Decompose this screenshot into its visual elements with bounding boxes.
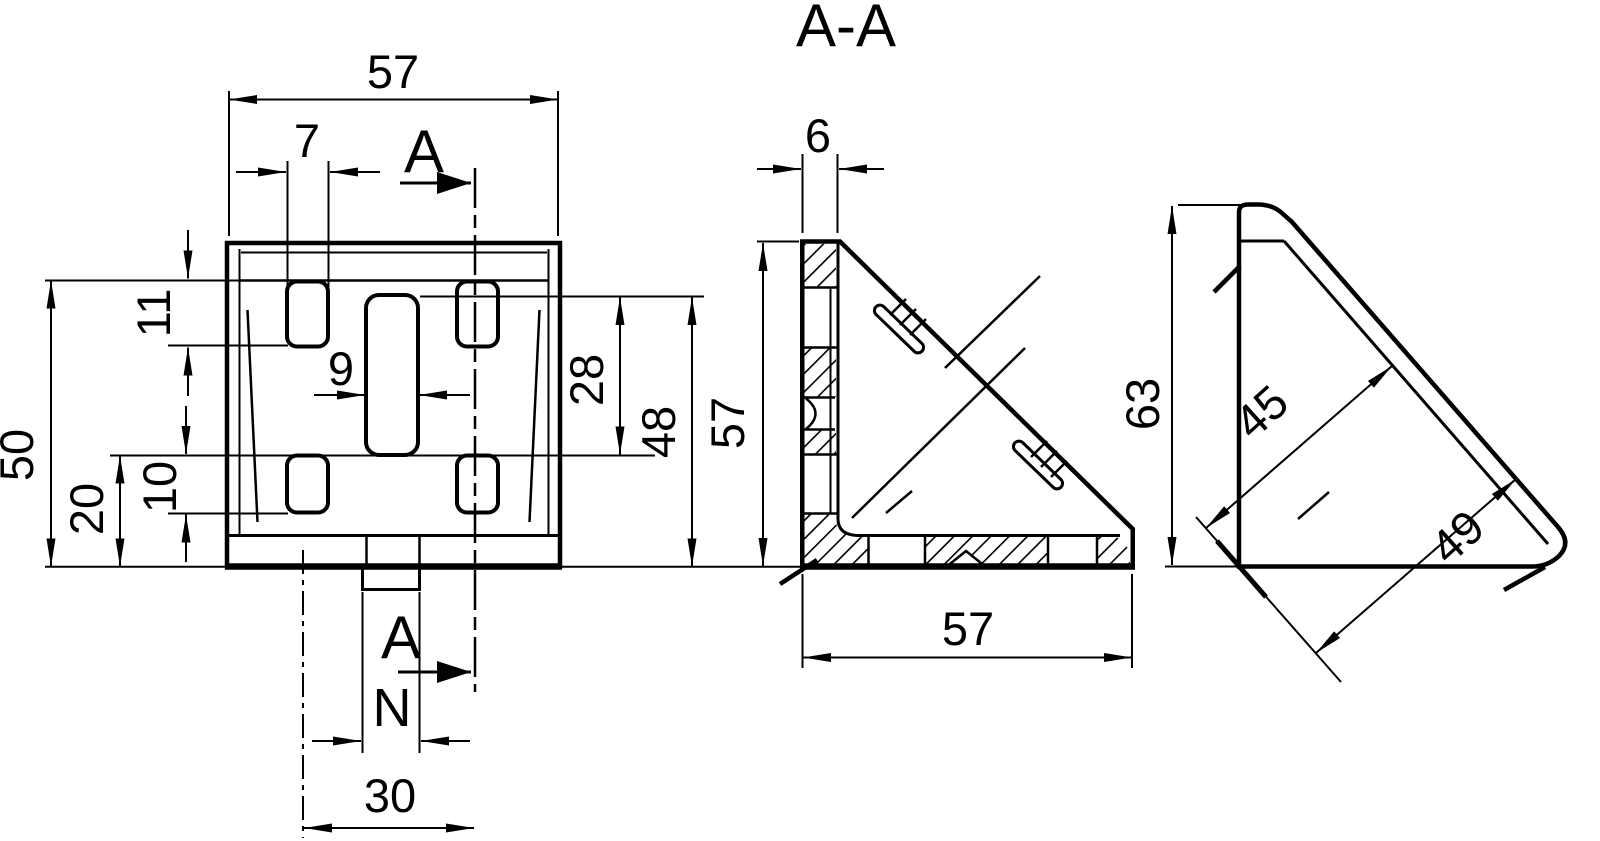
engineering-drawing: A-A A A 57	[0, 0, 1600, 841]
dim-label-20: 20	[60, 483, 113, 535]
side-tick-right	[1504, 567, 1545, 590]
dim-wall-thickness: 6	[757, 109, 884, 233]
drawing-page: A-A A A 57	[0, 0, 1600, 841]
corner-tick	[780, 560, 817, 584]
dim-section-height: 57	[701, 242, 799, 567]
section-letter-top: A	[404, 118, 444, 185]
dim-label-11: 11	[127, 289, 180, 338]
side-outline	[1239, 205, 1565, 567]
slot-top-left	[287, 282, 328, 347]
hatch-wall-top	[804, 244, 836, 287]
dim-center-slot-height: 28	[560, 297, 620, 455]
dim-section-width: 57	[803, 574, 1133, 668]
slot-bottom-right	[457, 456, 498, 513]
front-view: A A 57 7 11	[0, 45, 800, 838]
section-title: A-A	[796, 0, 896, 59]
dim-label-48: 48	[632, 406, 685, 458]
section-letter-bottom: A	[381, 604, 421, 671]
dim-label-6: 6	[805, 109, 831, 162]
dim-side-height: 63	[1116, 205, 1250, 567]
dim-label-57-top: 57	[367, 45, 419, 98]
side-view: 63 45 49	[1116, 205, 1565, 683]
dim-label-30: 30	[364, 769, 416, 822]
slot-bottom-left	[287, 456, 328, 513]
dim-front-width: 57	[229, 45, 558, 236]
slot-center	[366, 295, 418, 455]
dim-bottom-slot-height: 10	[133, 406, 186, 562]
dim-label-n: N	[373, 678, 412, 738]
dim-label-57-bottom: 57	[942, 602, 994, 655]
dim-label-9: 9	[328, 342, 354, 395]
dim-top-slot-height: 11	[127, 230, 188, 396]
section-view: 6 57 57	[701, 109, 1135, 668]
dim-height-50: 50	[0, 281, 51, 567]
hatch-leg-mid	[925, 536, 1048, 565]
crossing-line	[945, 276, 1040, 368]
dim-label-50: 50	[0, 429, 43, 481]
dim-label-28: 28	[560, 354, 613, 406]
nut-tab	[361, 568, 421, 590]
slot-top-right	[457, 282, 498, 347]
dim-label-7: 7	[294, 114, 320, 167]
side-tick-top	[1214, 266, 1240, 292]
dim-section-offset: 30	[304, 769, 474, 828]
dim-label-10: 10	[133, 461, 186, 513]
dim-label-57-left: 57	[701, 397, 754, 449]
dim-48: 48	[632, 297, 692, 567]
dim-height-20: 20	[60, 456, 120, 567]
dim-label-63: 63	[1116, 378, 1169, 430]
